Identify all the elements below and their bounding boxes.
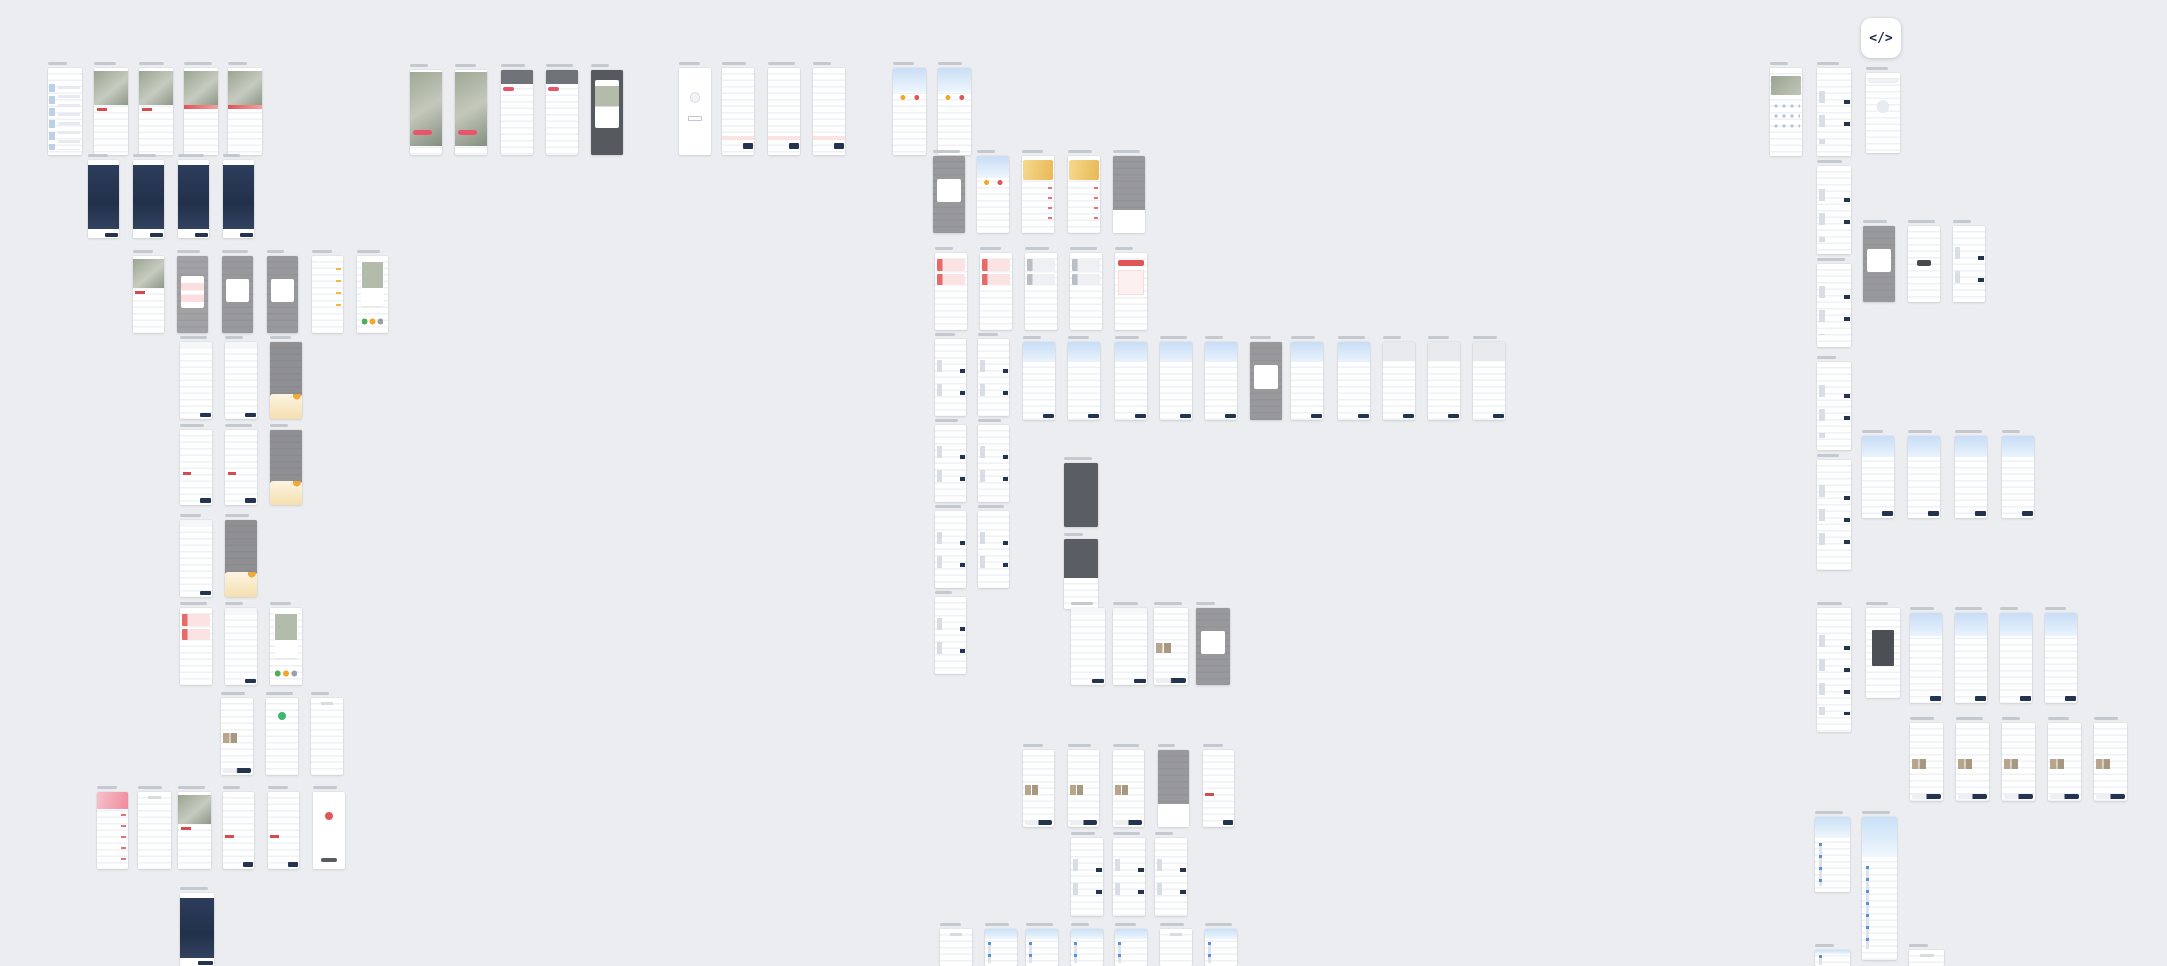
frame-label — [228, 62, 247, 65]
frame-label — [225, 602, 243, 605]
frame-label — [221, 692, 245, 695]
frame-label — [180, 336, 207, 339]
frame-label — [225, 424, 252, 427]
frame-label — [813, 62, 831, 65]
screen-frame-detail-banner[interactable] — [228, 68, 262, 155]
frame-label — [977, 150, 995, 153]
frame-label — [1023, 336, 1041, 339]
frame-label — [180, 602, 207, 605]
frame-label — [270, 602, 291, 605]
frame-label — [591, 64, 609, 67]
frame-label — [1817, 258, 1845, 261]
screen-frame-list[interactable] — [935, 597, 966, 674]
screen-frame-home[interactable] — [1770, 68, 1802, 156]
frame-label — [1908, 220, 1935, 223]
screen-frame-pay[interactable] — [225, 430, 257, 505]
screen-frame-coupons-gray[interactable] — [1070, 253, 1102, 330]
screen-frame-aftersale[interactable] — [2002, 723, 2035, 801]
frame-label — [311, 692, 329, 695]
screen-frame-list[interactable] — [1817, 460, 1851, 570]
screen-frame-wallet[interactable] — [1022, 156, 1054, 233]
frame-label — [1070, 247, 1097, 250]
screen-frame-order-blue[interactable] — [1955, 613, 1987, 703]
frame-label — [1956, 717, 1983, 720]
frame-label — [1250, 336, 1271, 339]
screen-frame-logistics[interactable] — [1115, 929, 1147, 966]
screen-frame-dark-card[interactable] — [591, 70, 623, 155]
frame-label — [1160, 923, 1184, 926]
screen-frame-detail[interactable] — [94, 68, 128, 155]
screen-frame-dark-split[interactable] — [1064, 539, 1098, 609]
frame-label — [546, 64, 573, 67]
screen-frame-navy[interactable] — [88, 160, 119, 238]
screen-frame-coupons[interactable] — [935, 253, 967, 330]
frame-label — [267, 250, 284, 253]
screen-frame-dim-gold[interactable] — [270, 342, 302, 419]
frame-label — [270, 424, 288, 427]
screen-frame-list[interactable] — [1817, 68, 1851, 156]
frame-label — [1022, 150, 1043, 153]
frame-label — [768, 62, 795, 65]
frame-label — [978, 419, 1001, 422]
screen-frame-list[interactable] — [1817, 608, 1851, 732]
screen-frame-dim-sheet[interactable] — [1158, 750, 1189, 827]
frame-label — [1866, 67, 1888, 70]
frame-label — [1113, 602, 1138, 605]
frame-label — [1026, 923, 1053, 926]
frame-label — [980, 247, 1001, 250]
frame-label — [501, 64, 525, 67]
frame-label — [225, 514, 249, 517]
frame-label — [1023, 744, 1043, 747]
frame-label — [1068, 744, 1091, 747]
screen-frame-dim-sheet[interactable] — [1113, 156, 1145, 233]
frame-label — [935, 419, 958, 422]
screen-frame-profile[interactable] — [977, 156, 1009, 233]
frame-label — [178, 786, 205, 789]
screen-frame-order-blue[interactable] — [2045, 613, 2077, 703]
screen-frame-dim-card[interactable] — [267, 256, 298, 333]
screen-frame-form[interactable] — [180, 342, 212, 419]
screen-frame-navy[interactable] — [180, 893, 214, 966]
screen-frame-logistics[interactable] — [1071, 929, 1103, 966]
screen-frame-pay[interactable] — [1203, 750, 1234, 827]
screen-frame-aftersale[interactable] — [2048, 723, 2081, 801]
screen-frame-logistics[interactable] — [985, 929, 1017, 966]
screen-frame-dark[interactable] — [1064, 463, 1098, 527]
frame-label — [1815, 944, 1834, 947]
screen-frame-feed[interactable] — [410, 70, 442, 155]
frame-label — [223, 786, 240, 789]
frame-label — [1817, 454, 1839, 457]
screen-frame-promo[interactable] — [97, 792, 128, 869]
frame-label — [266, 692, 293, 695]
frame-label — [1338, 336, 1365, 339]
frame-label — [1863, 220, 1887, 223]
frame-label — [935, 505, 961, 508]
code-icon: </> — [1869, 31, 1892, 46]
frame-label — [312, 250, 332, 253]
screen-frame-form[interactable] — [225, 608, 257, 685]
screen-frame-list[interactable] — [1155, 838, 1187, 916]
screen-frame-navy[interactable] — [178, 160, 209, 238]
frame-label — [940, 923, 961, 926]
screen-frame-reviews[interactable] — [312, 256, 343, 333]
design-canvas[interactable]: </> — [0, 0, 2167, 966]
screen-frame-list[interactable] — [1071, 838, 1103, 916]
screen-frame-doc[interactable] — [138, 792, 171, 869]
frame-label — [313, 786, 337, 789]
screen-frame-aftersale[interactable] — [1113, 750, 1144, 827]
frame-label — [679, 62, 700, 65]
frame-label — [178, 154, 204, 157]
screen-frame-search[interactable] — [1866, 73, 1900, 153]
frame-label — [268, 786, 288, 789]
screen-frame-toast[interactable] — [1908, 226, 1940, 302]
screen-frame-dim-card[interactable] — [1250, 342, 1282, 420]
frame-label — [177, 250, 200, 253]
frame-label — [978, 333, 998, 336]
frame-label — [1115, 923, 1136, 926]
frame-label — [1205, 336, 1223, 339]
screen-frame-coupons[interactable] — [980, 253, 1012, 330]
frame-label — [1910, 607, 1934, 610]
screen-frame-wallet[interactable] — [1068, 156, 1100, 233]
screen-frame-list[interactable] — [978, 425, 1009, 502]
screen-frame-order-blue[interactable] — [2000, 613, 2032, 703]
screen-frame-list[interactable] — [935, 425, 966, 502]
screen-frame-feed[interactable] — [455, 70, 487, 155]
screen-frame-cart[interactable] — [722, 68, 754, 155]
screen-frame-dim-gold[interactable] — [225, 520, 257, 597]
frame-label — [2002, 717, 2020, 720]
frame-label — [1862, 811, 1890, 814]
frame-label — [1473, 336, 1497, 339]
screen-frame-dim-gold[interactable] — [270, 430, 302, 505]
frame-label — [222, 250, 248, 253]
screen-frame-form[interactable] — [1071, 608, 1105, 685]
screen-frame-dim-card[interactable] — [933, 156, 965, 233]
frame-label — [1158, 744, 1175, 747]
frame-label — [1071, 602, 1093, 605]
screen-frame-doc[interactable] — [1160, 929, 1192, 966]
screen-frame-order-gray[interactable] — [1473, 342, 1505, 420]
screen-frame-dim-pink[interactable] — [177, 256, 208, 333]
screen-frame-order-blue[interactable] — [1205, 342, 1237, 420]
screen-frame-order-blue[interactable] — [1910, 613, 1942, 703]
frame-label — [1770, 62, 1788, 65]
screen-frame-navy[interactable] — [133, 160, 164, 238]
screen-frame-doc[interactable] — [940, 929, 972, 966]
frame-label — [1205, 923, 1232, 926]
frame-label — [933, 150, 960, 153]
screen-frame-pay[interactable] — [223, 792, 254, 869]
frame-label — [223, 154, 240, 157]
frame-label — [180, 424, 204, 427]
frame-label — [1115, 336, 1139, 339]
screen-frame-order-blue[interactable] — [1862, 436, 1894, 518]
frame-label — [1953, 220, 1971, 223]
screen-frame-wcard[interactable] — [1866, 608, 1900, 698]
screen-frame-aftersale[interactable] — [1068, 750, 1099, 827]
frame-label — [985, 923, 1009, 926]
frame-label — [2048, 717, 2069, 720]
frame-label — [1115, 247, 1133, 250]
frame-label — [139, 62, 164, 65]
frame-label — [1113, 832, 1140, 835]
screen-frame-logistics[interactable] — [1815, 950, 1850, 966]
screen-frame-list[interactable] — [1817, 362, 1851, 450]
frame-label — [1203, 744, 1223, 747]
screen-frame-profile[interactable] — [893, 68, 926, 155]
frame-label — [1817, 356, 1836, 359]
frame-label — [1817, 602, 1842, 605]
frame-label — [1955, 607, 1982, 610]
screen-frame-list[interactable] — [935, 511, 966, 588]
screen-frame-pay[interactable] — [180, 430, 212, 505]
screen-frame-list-blue[interactable] — [48, 68, 82, 155]
frame-label — [1155, 832, 1173, 835]
frame-label — [1862, 430, 1883, 433]
screen-frame-list[interactable] — [1817, 264, 1851, 347]
screen-frame-dim-card[interactable] — [222, 256, 253, 333]
frame-label — [225, 336, 243, 339]
screen-frame-order-blue[interactable] — [1160, 342, 1192, 420]
frame-label — [1866, 602, 1888, 605]
frame-label — [180, 887, 208, 890]
screen-frame-error[interactable] — [313, 792, 345, 869]
frame-label — [2045, 607, 2066, 610]
screen-frame-aftersale[interactable] — [1910, 723, 1943, 801]
screen-frame-empty[interactable] — [679, 68, 711, 155]
screen-frame-comments[interactable] — [501, 70, 533, 155]
screen-frame-doc[interactable] — [1909, 950, 1944, 966]
frame-label — [1068, 150, 1092, 153]
screen-frame-detail-banner[interactable] — [184, 68, 218, 155]
screen-frame-order-gray[interactable] — [1383, 342, 1415, 420]
screen-frame-profile[interactable] — [938, 68, 971, 155]
screen-frame-list[interactable] — [978, 339, 1009, 416]
frame-label — [2094, 717, 2118, 720]
screen-frame-logistics[interactable] — [1862, 817, 1897, 960]
screen-frame-order-blue[interactable] — [1955, 436, 1987, 518]
screen-frame-form[interactable] — [1113, 608, 1147, 685]
frame-label — [357, 250, 380, 253]
frame-label — [1383, 336, 1401, 339]
screen-frame-logistics[interactable] — [1026, 929, 1058, 966]
screen-frame-list[interactable] — [935, 339, 966, 416]
screen-frame-navy[interactable] — [223, 160, 254, 238]
screen-frame-list[interactable] — [1817, 166, 1851, 254]
frame-label — [1910, 717, 1934, 720]
screen-frame-dim-card[interactable] — [1863, 226, 1895, 302]
frame-label — [938, 62, 962, 65]
frame-label — [1196, 602, 1215, 605]
frame-label — [410, 64, 428, 67]
frame-label — [1154, 602, 1182, 605]
frame-label — [138, 786, 162, 789]
screen-frame-detail[interactable] — [133, 256, 164, 333]
frame-label — [88, 154, 108, 157]
frame-label — [2002, 430, 2020, 433]
frame-label — [1909, 944, 1928, 947]
frame-label — [978, 505, 1004, 508]
frame-label — [893, 62, 914, 65]
frame-label — [935, 333, 955, 336]
frame-label — [1071, 923, 1089, 926]
frame-label — [1113, 744, 1139, 747]
frame-label — [1064, 457, 1092, 460]
screen-frame-dim-card[interactable] — [1196, 608, 1230, 685]
screen-frame-list[interactable] — [978, 511, 1009, 588]
frame-label — [94, 62, 116, 65]
screen-frame-share[interactable] — [270, 608, 302, 685]
frame-label — [1428, 336, 1449, 339]
frame-label — [1815, 811, 1843, 814]
frame-label — [180, 514, 201, 517]
screen-frame-cart[interactable] — [813, 68, 845, 155]
screen-frame-logistics[interactable] — [1205, 929, 1237, 966]
frame-label — [935, 591, 952, 594]
frame-label — [2000, 607, 2018, 610]
frame-label — [184, 62, 212, 65]
screen-frame-form[interactable] — [225, 342, 257, 419]
screen-frame-aftersale[interactable] — [1023, 750, 1054, 827]
frame-label — [1068, 336, 1089, 339]
screen-frame-cart[interactable] — [768, 68, 800, 155]
frame-label — [270, 336, 291, 339]
frame-label — [133, 250, 153, 253]
screen-frame-aftersale[interactable] — [221, 698, 253, 775]
frame-label — [1025, 247, 1049, 250]
screen-frame-detail[interactable] — [139, 68, 173, 155]
screen-frame-order-blue[interactable] — [2002, 436, 2034, 518]
screen-frame-aftersale[interactable] — [2094, 723, 2127, 801]
screen-frame-aftersale[interactable] — [1154, 608, 1188, 685]
frame-label — [1817, 160, 1842, 163]
screen-frame-pay[interactable] — [268, 792, 299, 869]
screen-frame-order-gray[interactable] — [1428, 342, 1460, 420]
screen-frame-list[interactable] — [1953, 226, 1985, 302]
frame-label — [935, 247, 953, 250]
frame-label — [1071, 832, 1095, 835]
frame-label — [133, 154, 156, 157]
code-button[interactable]: </> — [1861, 18, 1901, 58]
frame-label — [1160, 336, 1187, 339]
screen-frame-order-blue[interactable] — [1023, 342, 1055, 420]
screen-frame-aftersale[interactable] — [1956, 723, 1989, 801]
screen-frame-doc[interactable] — [311, 698, 343, 775]
screen-frame-order-blue[interactable] — [1338, 342, 1370, 420]
screen-frame-detail[interactable] — [178, 792, 211, 869]
frame-label — [455, 64, 476, 67]
screen-frame-form[interactable] — [180, 520, 212, 597]
screen-frame-success[interactable] — [266, 698, 298, 775]
screen-frame-order-blue[interactable] — [1291, 342, 1323, 420]
frame-label — [1955, 430, 1982, 433]
frame-label — [1113, 150, 1140, 153]
frame-label — [1817, 62, 1839, 65]
screen-frame-red-btn[interactable] — [1115, 253, 1147, 330]
screen-frame-logistics[interactable] — [1815, 817, 1850, 892]
screen-frame-order-blue[interactable] — [1908, 436, 1940, 518]
frame-label — [1908, 430, 1932, 433]
frame-label — [97, 786, 117, 789]
screen-frame-order-blue[interactable] — [1068, 342, 1100, 420]
frame-label — [1064, 533, 1083, 536]
screen-frame-coupons[interactable] — [180, 608, 212, 685]
screen-frame-share[interactable] — [357, 256, 388, 333]
screen-frame-list[interactable] — [1113, 838, 1145, 916]
frame-label — [48, 62, 67, 65]
frame-label — [1291, 336, 1315, 339]
screen-frame-comments[interactable] — [546, 70, 578, 155]
frame-label — [722, 62, 746, 65]
screen-frame-coupons-gray[interactable] — [1025, 253, 1057, 330]
screen-frame-order-blue[interactable] — [1115, 342, 1147, 420]
